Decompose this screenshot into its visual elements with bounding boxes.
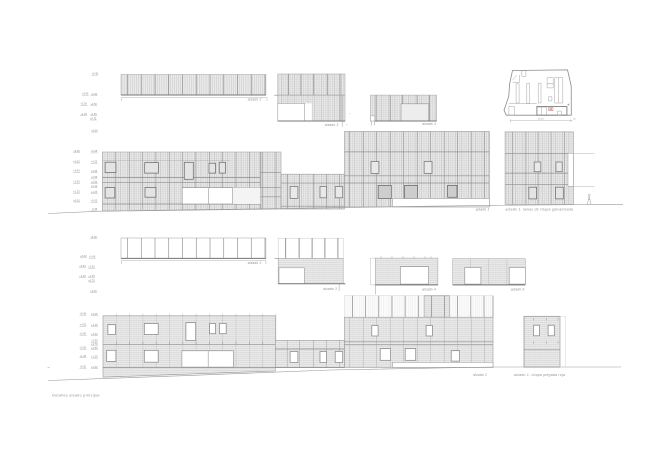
svg-text:Detalles alzado principal: Detalles alzado principal (52, 393, 99, 397)
svg-text:alzado 4: alzado 4 (422, 122, 436, 126)
svg-text:alzado 1: alzado 1 (476, 208, 490, 212)
svg-text:alzado 2: alzado 2 (248, 261, 262, 265)
svg-text:alzado 3: alzado 3 (325, 123, 339, 127)
svg-text:alzado 1: alzado 1 (473, 373, 487, 377)
svg-text:alzado 3: alzado 3 (323, 287, 337, 291)
svg-text:alzado 4: alzado 4 (422, 288, 436, 292)
svg-text:alzado 6: alzado 6 (511, 288, 525, 292)
svg-text:alzado 2: alzado 2 (248, 97, 262, 101)
svg-text:A4 A2: A4 A2 (538, 118, 545, 121)
svg-text:alzado 1. lamas de chapa galv: alzado 1. lamas de chapa galvanizada (506, 208, 574, 212)
svg-text:alzado 1. chapa plegada roja: alzado 1. chapa plegada roja (514, 373, 565, 377)
